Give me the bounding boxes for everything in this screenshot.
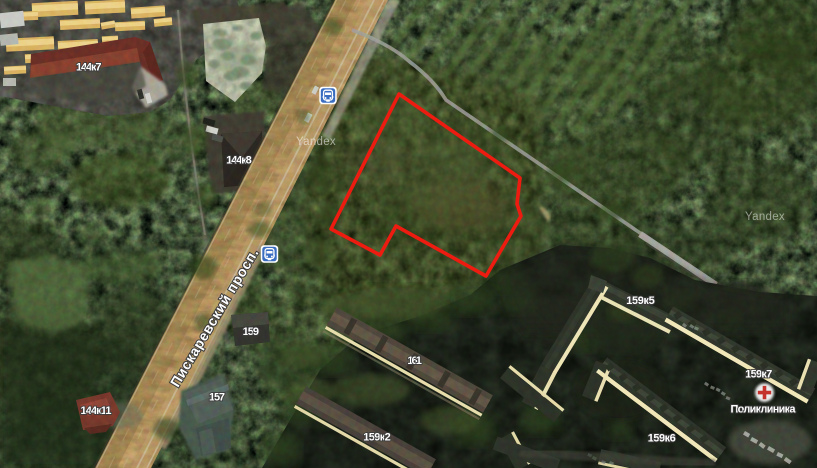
svg-text:161: 161 — [407, 355, 422, 367]
svg-text:144к8: 144к8 — [226, 155, 252, 167]
svg-text:Поликлиника: Поликлиника — [731, 404, 797, 416]
svg-text:159к7: 159к7 — [745, 368, 772, 380]
svg-text:Yandex: Yandex — [296, 136, 336, 148]
svg-text:144к7: 144к7 — [76, 61, 102, 73]
svg-text:159к5: 159к5 — [626, 295, 655, 307]
svg-text:144к11: 144к11 — [81, 405, 112, 417]
svg-text:159к6: 159к6 — [648, 432, 676, 444]
svg-text:159к2: 159к2 — [363, 432, 391, 444]
svg-text:159: 159 — [243, 326, 259, 338]
svg-text:157: 157 — [209, 392, 225, 404]
svg-text:Yandex: Yandex — [745, 211, 785, 223]
